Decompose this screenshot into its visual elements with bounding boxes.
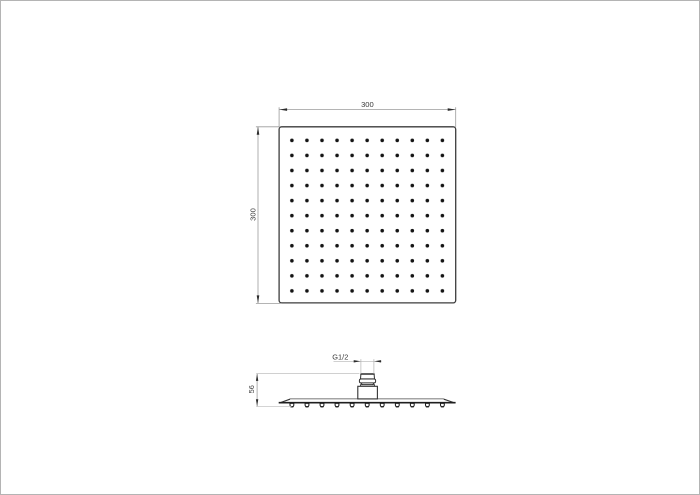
svg-text:G1/2: G1/2 (332, 353, 348, 362)
svg-text:56: 56 (247, 385, 256, 393)
svg-text:300: 300 (249, 208, 258, 221)
svg-text:300: 300 (361, 100, 374, 109)
